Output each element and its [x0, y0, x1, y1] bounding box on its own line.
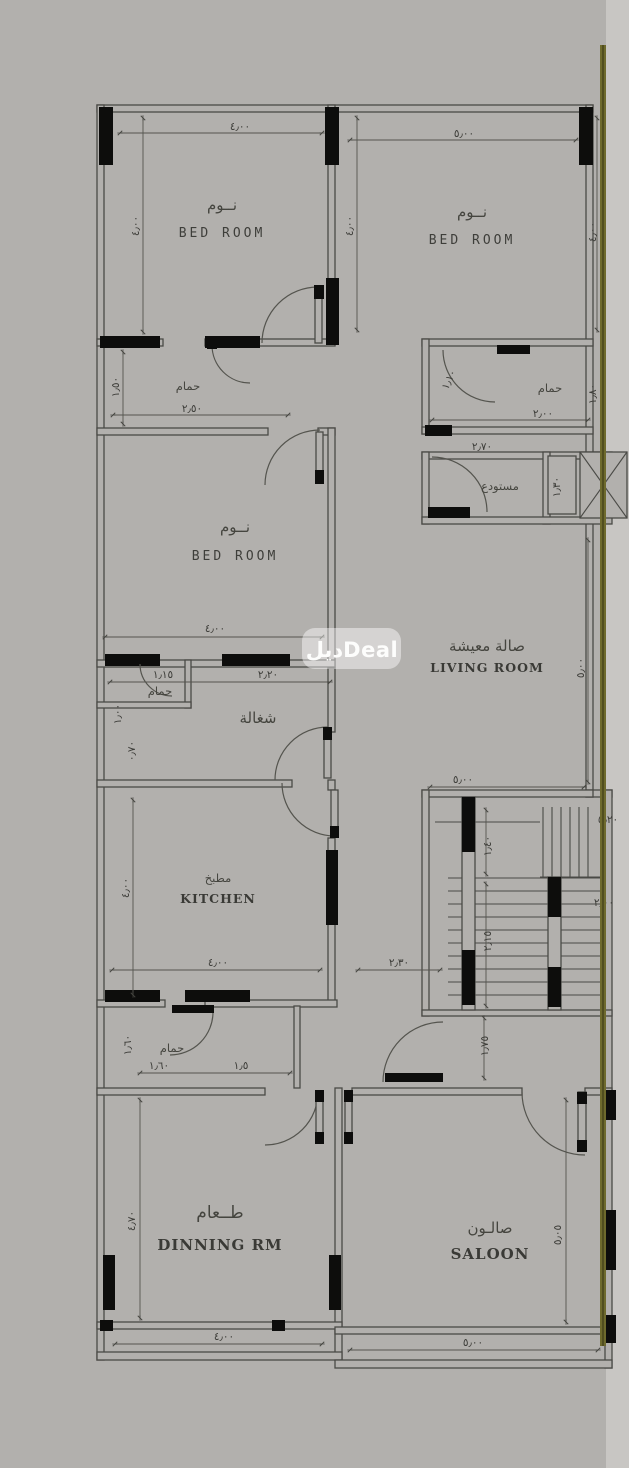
- label-bathroom-tl: حمام: [176, 379, 200, 393]
- label-dining-en: DINNING RM: [157, 1236, 282, 1254]
- dim-stair-flight: ١٫٤٠: [482, 836, 494, 856]
- label-living-en: LIVING ROOM: [430, 660, 544, 675]
- label-bathroom-tr: حمام: [538, 381, 562, 395]
- dim-tr-width: ٥٫٠٠: [454, 128, 474, 140]
- label-storage: مستودع: [481, 479, 519, 494]
- dim-living-width: ٥٫٠٠: [453, 774, 473, 786]
- dim-kitchen-door: ٢٫٣٠: [389, 957, 409, 969]
- label-bedroom-tr-ar: نــوم: [457, 203, 487, 221]
- dim-tl-height: ٤٫٠٠: [130, 216, 142, 236]
- dim-tr-height-right: ٤٫٠٠: [587, 222, 599, 242]
- dim-storage-width: ٢٫٧٠: [472, 441, 492, 453]
- dim-bath-tl-height: ١٫٥٠: [110, 377, 122, 397]
- label-saloon-en: SALOON: [451, 1245, 530, 1263]
- dim-bath-tl-width: ٢٫٥٠: [182, 403, 202, 415]
- dim-bath-tr-height: ١٫٨٠: [587, 384, 599, 404]
- dim-dining-height: ٤٫٧٠: [126, 1211, 138, 1231]
- dim-saloon-height: ٥٫٠٥: [552, 1225, 564, 1245]
- label-bedroom-mid-ar: نــوم: [220, 518, 250, 536]
- label-maid: شغالة: [240, 709, 277, 727]
- label-kitchen-en: KITCHEN: [180, 891, 256, 906]
- dim-bath-tr-width: ٢٫٠٠: [533, 408, 553, 420]
- dim-storage-height: ١٫٣٠: [551, 477, 563, 497]
- label-dining-ar: طــعام: [196, 1203, 243, 1223]
- dim-bath-b-height: ١٫٦٠: [122, 1035, 134, 1055]
- dim-tr-height-left: ٤٫٠٠: [344, 216, 356, 236]
- paper-background: [0, 0, 629, 1468]
- label-kitchen-ar: مطبخ: [205, 871, 232, 885]
- label-bedroom-tl-en: BED ROOM: [179, 226, 266, 241]
- label-living-ar: صالة معيشة: [449, 637, 525, 655]
- dim-maid-left-upper: ١٫٠٠: [112, 704, 124, 724]
- label-bedroom-tr-en: BED ROOM: [429, 233, 516, 248]
- dim-saloon-width: ٥٫٠٠: [463, 1337, 483, 1349]
- dim-stair-mid: ٢٫١٥: [482, 931, 494, 951]
- dim-dining-width: ٤٫٠٠: [214, 1331, 234, 1343]
- dim-tl-width: ٤٫٠٠: [230, 121, 250, 133]
- dim-living-height: ٥٫٠٠: [575, 658, 587, 678]
- dim-bedroom-mid-width: ٤٫٠٠: [205, 623, 225, 635]
- dim-maid-left-lower: ٠٫٧٠: [126, 741, 138, 761]
- annotation-line: [600, 45, 606, 1346]
- dim-bath-b-door: ١٫٥: [234, 1060, 249, 1072]
- dim-maid-bath-width: ١٫١٥: [153, 669, 173, 681]
- label-bedroom-tl-ar: نــوم: [207, 196, 237, 214]
- label-bath-bottom: حمام: [160, 1041, 184, 1055]
- dim-kitchen-height: ٤٫٠٠: [120, 878, 132, 898]
- dim-hall-door: ١٫٧٥: [479, 1036, 491, 1056]
- label-maid-bath: حمام: [148, 684, 172, 698]
- label-bedroom-mid-en: BED ROOM: [192, 549, 279, 564]
- label-saloon-ar: صالـون: [467, 1219, 512, 1237]
- watermark-text: ديلDeal: [306, 638, 398, 662]
- dim-bath-b-width: ١٫٦٠: [149, 1060, 169, 1072]
- floor-plan-page: ٤٫٠٠ ٥٫٠٠ ٤٫٠٠ ٤٫٠٠ ٤٫٠٠ ٢٫٥٠ ١٫٥٠ ٢٫٠٠ …: [0, 0, 629, 1468]
- dim-maid-width: ٢٫٢٠: [258, 669, 278, 681]
- floor-plan-canvas: ٤٫٠٠ ٥٫٠٠ ٤٫٠٠ ٤٫٠٠ ٤٫٠٠ ٢٫٥٠ ١٫٥٠ ٢٫٠٠ …: [0, 0, 629, 1468]
- dim-kitchen-width: ٤٫٠٠: [208, 957, 228, 969]
- watermark: ديلDeal: [302, 628, 401, 669]
